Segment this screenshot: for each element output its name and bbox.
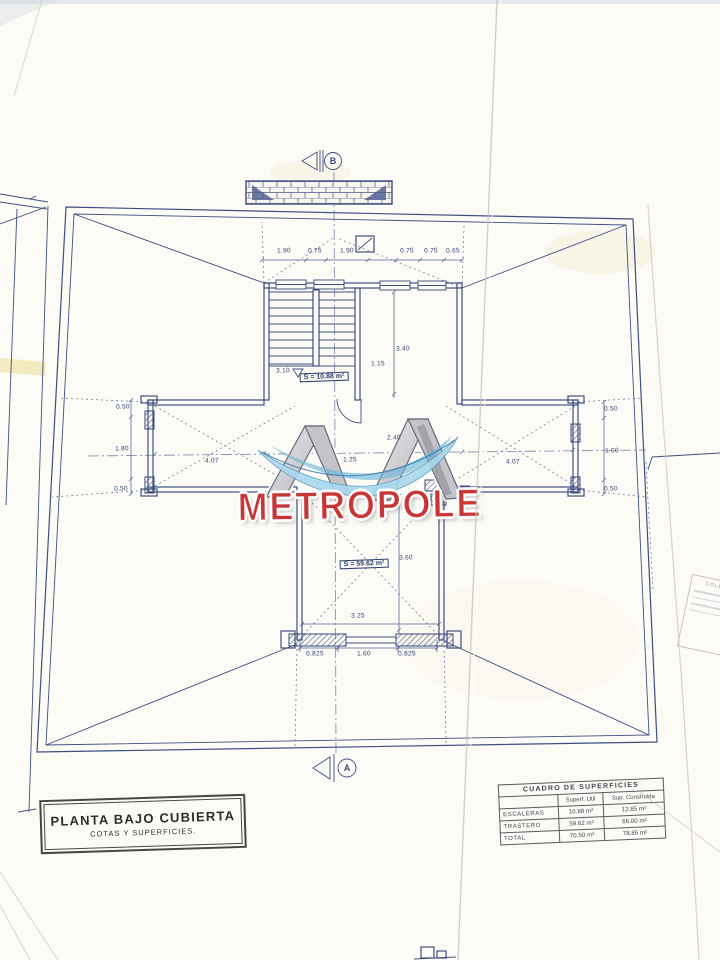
dimension-label: 1.60 (357, 650, 371, 657)
dimension-label: 0.50 (604, 405, 618, 412)
section-marker-b: B (330, 156, 337, 166)
trastero-area-label: S = 59.62 m² (340, 559, 389, 570)
dimension-label: 0.50 (116, 403, 130, 410)
dimension-label: 1.80 (115, 445, 129, 452)
dimension-label: 1.60 (605, 447, 619, 454)
brand-text: METROPOLE (235, 481, 485, 530)
drawing-subtitle: COTAS Y SUPERFICIES. (90, 826, 197, 838)
dimension-label: 3.25 (351, 612, 365, 619)
stairs-area-label: S = 10.88 m² (300, 372, 349, 383)
dimension-label: 4.07 (506, 458, 520, 465)
dimension-label: 3.60 (399, 554, 413, 561)
dimension-label: 0.825 (398, 650, 416, 657)
stamp-lines (686, 589, 720, 619)
dimension-label: 0.75 (400, 247, 414, 254)
dimension-label: 4.07 (205, 457, 219, 464)
dimension-label: 2.40 (387, 434, 401, 441)
section-marker-a: A (344, 763, 351, 773)
cell-construida: 78.85 m² (604, 826, 666, 841)
adjacent-sheet-bottom (414, 947, 456, 959)
adjacent-sheet-left (0, 194, 48, 812)
dimension-label: 0.75 (308, 247, 322, 254)
dimension-label: 1.90 (277, 247, 291, 254)
dimension-label: 0.825 (306, 650, 324, 657)
stair-block (264, 280, 462, 423)
adjacent-sheet-right (646, 453, 720, 592)
title-block-inner: PLANTA BAJO CUBIERTA COTAS Y SUPERFICIES… (43, 798, 242, 850)
dimension-label: 1.15 (371, 360, 385, 367)
metropole-watermark: METROPOLE (238, 412, 482, 527)
dimension-label: 0.65 (446, 247, 460, 254)
dimension-label: 1.90 (340, 247, 354, 254)
chimney-hatch (246, 181, 392, 204)
dimension-label: 0.50 (604, 485, 618, 492)
dimension-label: 3.40 (396, 345, 410, 352)
cell-util: 70.50 m² (559, 829, 604, 843)
dimension-label: 0.75 (424, 247, 438, 254)
areas-table: CUADRO DE SUPERFICIES Superf. Util Sup. … (498, 778, 666, 846)
scanned-blueprint-page: METROPOLE 1.90 0.75 1.90 0.75 0.75 0.65 … (0, 0, 720, 960)
small-chimney (356, 236, 374, 252)
title-block: PLANTA BAJO CUBIERTA COTAS Y SUPERFICIES… (39, 794, 247, 854)
dimension-label: 0.50 (114, 485, 128, 492)
drawing-title: PLANTA BAJO CUBIERTA (50, 808, 235, 829)
dimension-label: 1.25 (343, 456, 357, 463)
row-label: TOTAL (500, 830, 560, 844)
dimension-label: 3.10 (276, 367, 290, 374)
